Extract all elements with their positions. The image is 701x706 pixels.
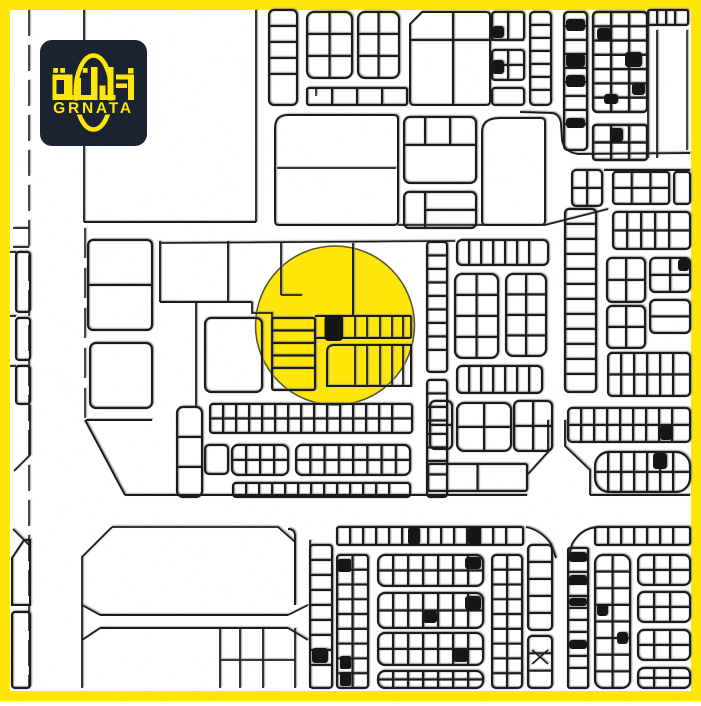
svg-text:GRNATA: GRNATA bbox=[53, 100, 134, 117]
